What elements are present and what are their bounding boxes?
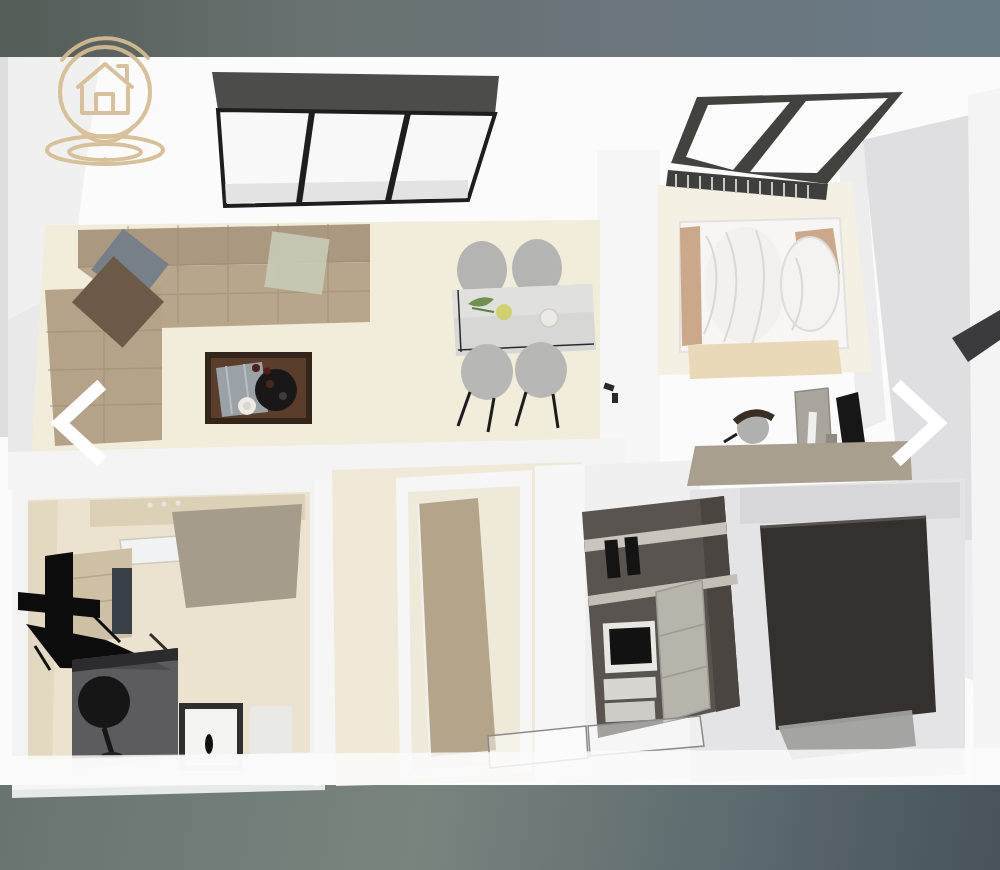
throw-pillow-sage [264, 231, 329, 295]
tray [255, 369, 297, 411]
center-dividing-wall [597, 150, 660, 468]
counter-knob [176, 501, 181, 506]
tray-item [279, 392, 287, 400]
wardrobe-top [760, 517, 936, 730]
left-edge-sliver [0, 57, 8, 437]
desk-shadow-strip [740, 482, 960, 524]
kitchen-unit [582, 496, 740, 738]
tray-item [266, 380, 274, 388]
bed-foot-bench [688, 340, 842, 379]
cabinet-door [656, 580, 710, 722]
bathroom [12, 478, 325, 798]
basin-faucet [205, 734, 213, 754]
kitchen-drawer [604, 677, 657, 701]
coffee-table [205, 352, 312, 424]
window-header [212, 72, 499, 114]
chair-arm [724, 434, 737, 442]
triple-pane-window [212, 72, 499, 206]
kitchen-drawer [605, 701, 656, 723]
dish-center [243, 402, 251, 410]
appliance-front [112, 568, 132, 634]
door-hinge-mark [612, 393, 618, 403]
bed [680, 218, 848, 379]
counter-knob [148, 503, 153, 508]
dish-yellow [496, 304, 512, 320]
logo-house-door [96, 94, 113, 113]
bowl [540, 309, 558, 327]
dining-chair [515, 342, 567, 398]
oven-door [609, 627, 652, 665]
bed-headboard [680, 226, 702, 346]
counter-knob [162, 502, 167, 507]
bed-pillow-white [781, 237, 839, 331]
desk-shelf [687, 441, 912, 486]
wardrobe [760, 517, 936, 760]
floor-plan-scene [0, 0, 1000, 870]
shower-stool [78, 676, 130, 728]
logo-dot [103, 157, 107, 161]
cup [252, 364, 260, 372]
cup [264, 368, 271, 375]
tall-unit [172, 504, 302, 608]
screenshot-root [0, 0, 1000, 870]
